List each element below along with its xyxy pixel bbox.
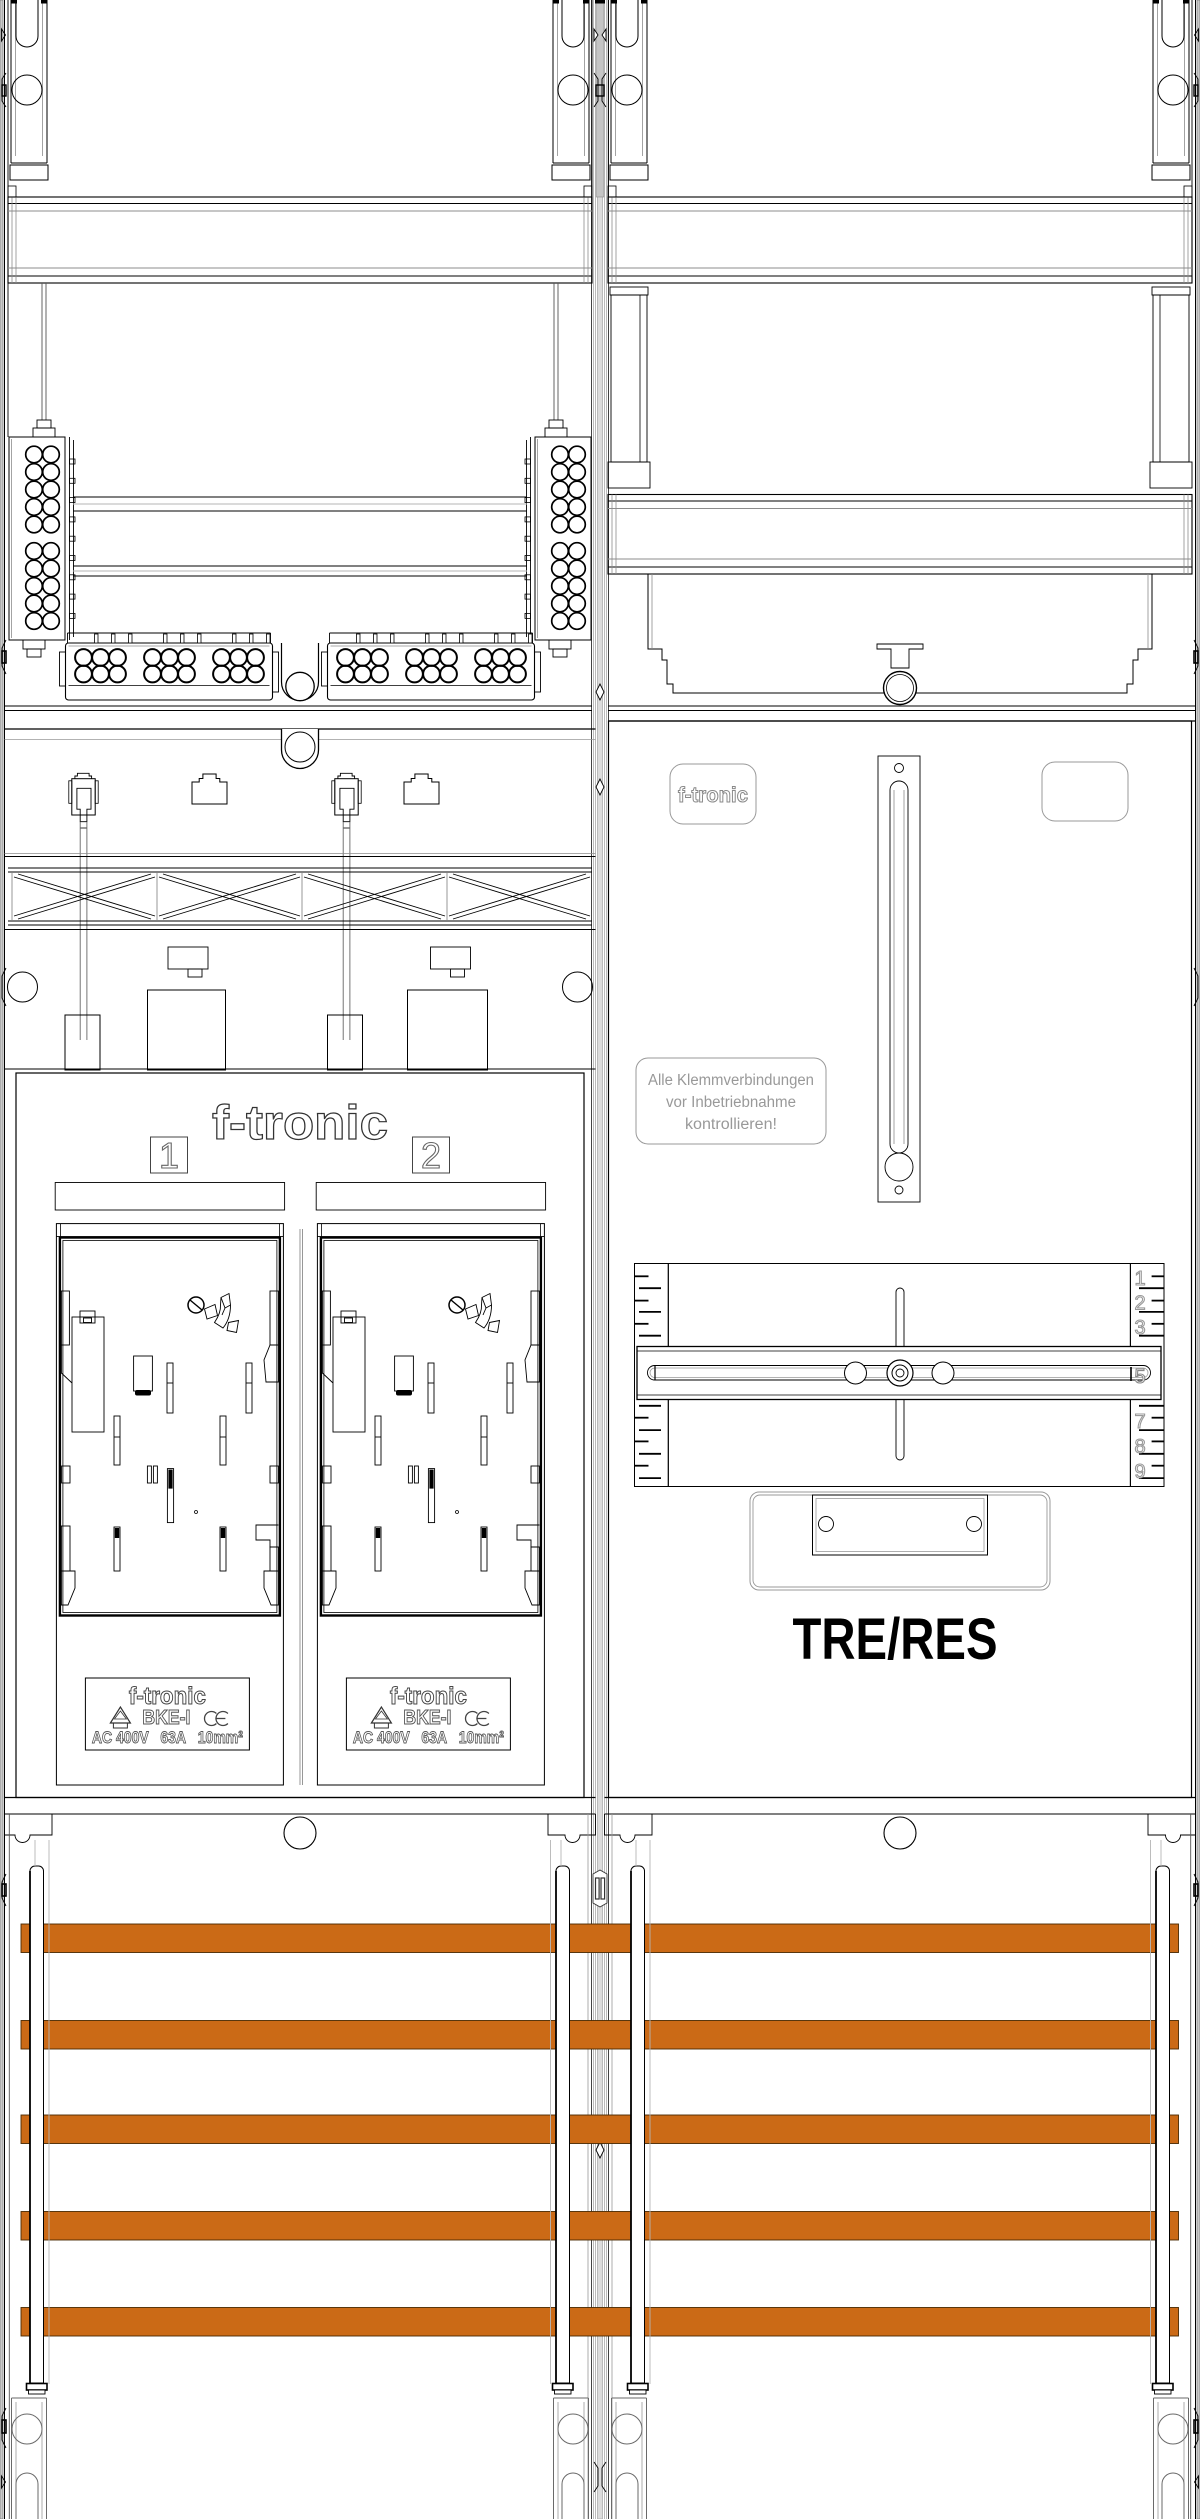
svg-text:f-tronic: f-tronic xyxy=(212,1097,388,1150)
svg-text:9: 9 xyxy=(1134,1461,1145,1483)
svg-text:f-tronic: f-tronic xyxy=(678,784,748,807)
svg-text:2: 2 xyxy=(1134,1293,1145,1315)
svg-text:BKE-I: BKE-I xyxy=(403,1707,451,1729)
svg-text:Alle Klemmverbindungen: Alle Klemmverbindungen xyxy=(648,1072,814,1089)
svg-text:f-tronic: f-tronic xyxy=(129,1683,206,1710)
svg-text:kontrollieren!: kontrollieren! xyxy=(685,1116,777,1133)
svg-text:5: 5 xyxy=(1134,1366,1145,1388)
svg-text:3: 3 xyxy=(1134,1317,1145,1339)
svg-text:7: 7 xyxy=(1134,1411,1145,1433)
svg-text:AC 400V 63A 10mm²: AC 400V 63A 10mm² xyxy=(92,1728,243,1747)
svg-text:1: 1 xyxy=(159,1135,179,1176)
svg-text:f-tronic: f-tronic xyxy=(390,1683,467,1710)
svg-text:TRE/RES: TRE/RES xyxy=(793,1607,998,1672)
svg-text:vor Inbetriebnahme: vor Inbetriebnahme xyxy=(666,1094,796,1111)
svg-text:8: 8 xyxy=(1134,1436,1145,1458)
svg-text:2: 2 xyxy=(421,1135,441,1176)
svg-text:AC 400V 63A 10mm²: AC 400V 63A 10mm² xyxy=(353,1728,504,1747)
svg-text:1: 1 xyxy=(1134,1268,1145,1290)
svg-text:BKE-I: BKE-I xyxy=(142,1707,190,1729)
